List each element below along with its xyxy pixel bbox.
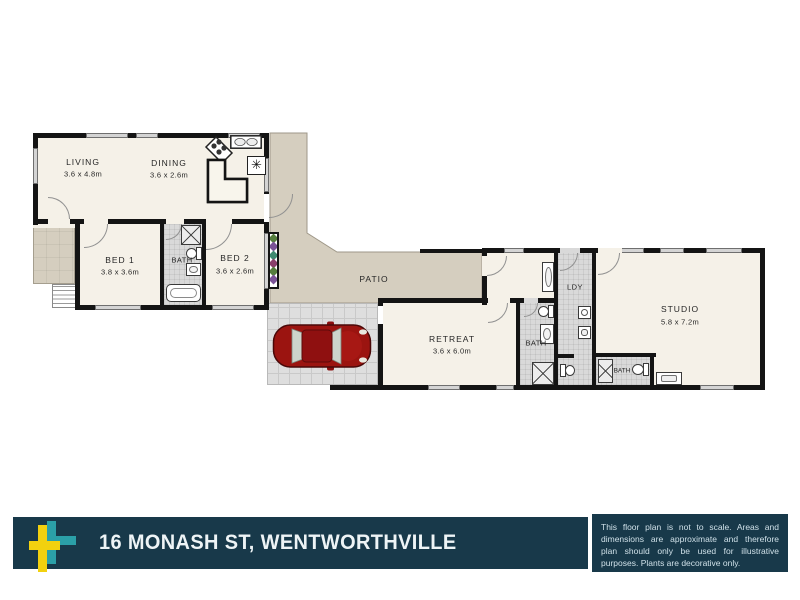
toilet-icon	[632, 363, 649, 376]
window	[136, 133, 158, 138]
room-dims-retreat: 3.6 x 6.0m	[433, 347, 471, 356]
wall	[420, 249, 482, 253]
washing-machine-icon	[578, 306, 591, 319]
disclaimer-box: This floor plan is not to scale. Areas a…	[592, 514, 788, 572]
kitchen-bench	[206, 158, 250, 206]
wall	[594, 353, 656, 357]
wall	[760, 248, 765, 390]
address-banner: 16 MONASH ST, WENTWORTHVILLE	[13, 517, 588, 569]
logo-yellow-plus-horizontal	[29, 541, 60, 550]
toilet-icon	[560, 364, 575, 377]
wall	[75, 219, 80, 310]
disclaimer-text: This floor plan is not to scale. Areas a…	[601, 522, 779, 568]
door-gap	[48, 219, 70, 224]
front-deck	[33, 222, 75, 284]
toilet-icon	[538, 305, 554, 318]
address-text: 16 MONASH ST, WENTWORTHVILLE	[99, 517, 457, 569]
floorplan: ✳	[0, 0, 800, 510]
agency-logo	[23, 519, 77, 575]
wall	[554, 248, 558, 390]
window	[496, 385, 514, 390]
room-label-bath-studio: BATH	[614, 368, 631, 375]
bathtub-icon	[166, 284, 201, 302]
kitchen-sink-icon	[230, 135, 262, 149]
window	[95, 305, 141, 310]
window	[428, 385, 460, 390]
door-gap	[378, 306, 383, 324]
window	[86, 133, 128, 138]
shower-icon	[181, 225, 201, 245]
wall	[160, 222, 164, 307]
entry-steps	[52, 284, 77, 308]
window	[504, 248, 524, 253]
room-label-patio: PATIO	[359, 274, 388, 284]
laundry-tub-icon	[578, 326, 591, 339]
window	[660, 248, 684, 253]
room-dims-living: 3.6 x 4.8m	[64, 170, 102, 179]
car-icon	[272, 320, 372, 372]
appliance-symbol: ✳	[251, 157, 262, 172]
room-label-dining: DINING	[151, 158, 187, 168]
wall	[330, 385, 378, 390]
wall	[650, 357, 654, 385]
wall	[558, 354, 574, 358]
wall	[516, 300, 520, 385]
shower-icon	[598, 359, 613, 383]
room-label-bed2: BED 2	[220, 253, 250, 263]
sink-icon	[542, 262, 554, 292]
room-dims-bed1: 3.8 x 3.6m	[101, 268, 139, 277]
room-label-laundry: LDY	[567, 283, 583, 292]
room-label-bath-main: BATH	[171, 256, 192, 265]
plant-icon	[269, 275, 279, 285]
window	[33, 148, 38, 184]
floorplan-page: ✳	[0, 0, 800, 600]
window	[212, 305, 254, 310]
shower-icon	[532, 362, 554, 385]
room-dims-bed2: 3.6 x 2.6m	[216, 267, 254, 276]
room-label-retreat: RETREAT	[429, 334, 475, 344]
room-label-living: LIVING	[66, 157, 100, 167]
room-label-studio: STUDIO	[661, 304, 699, 314]
window	[700, 385, 734, 390]
room-dims-studio: 5.8 x 7.2m	[661, 318, 699, 327]
room-label-bath-rear: BATH	[525, 339, 546, 348]
sink-icon	[186, 263, 201, 276]
window	[620, 248, 644, 253]
wall	[592, 248, 596, 390]
garden-planter	[268, 232, 279, 289]
room-dims-dining: 3.6 x 2.6m	[150, 171, 188, 180]
vanity-icon	[656, 372, 682, 385]
room-label-bed1: BED 1	[105, 255, 135, 265]
window	[706, 248, 742, 253]
